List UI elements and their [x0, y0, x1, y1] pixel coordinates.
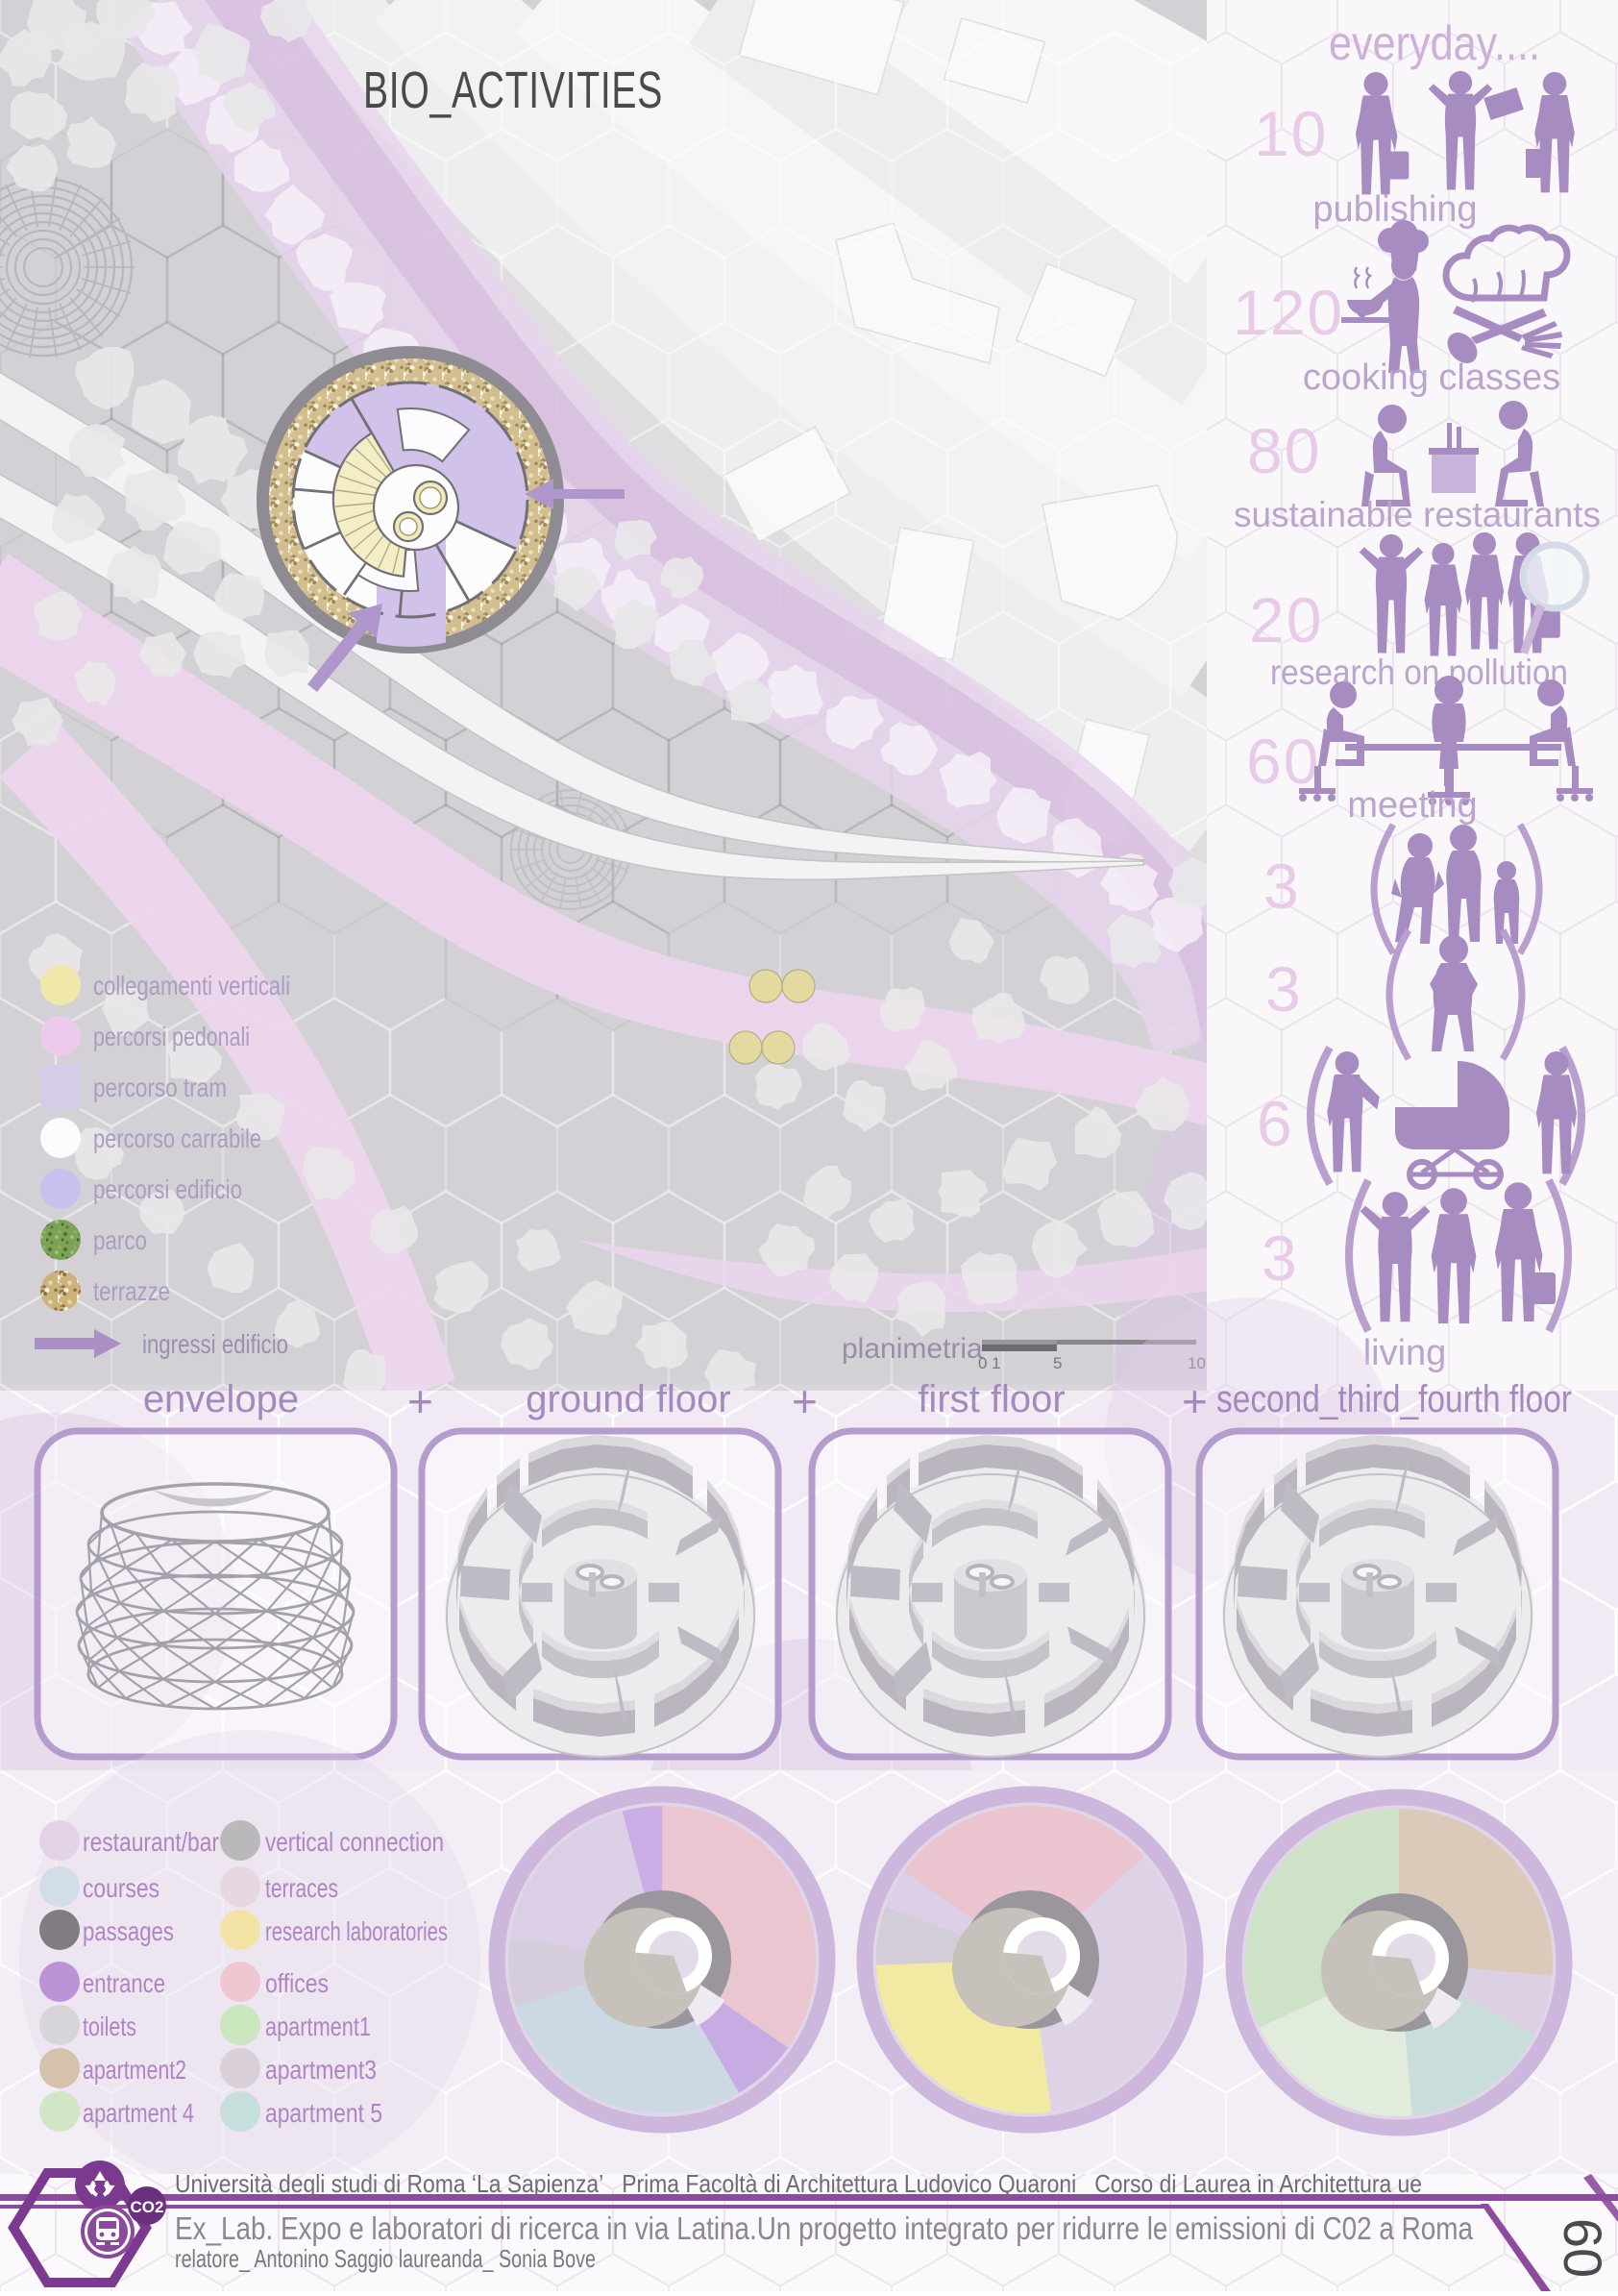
svg-text:living: living [1363, 1333, 1447, 1373]
svg-text:passages: passages [83, 1916, 174, 1946]
svg-text:+: + [407, 1376, 433, 1426]
svg-text:Ex_Lab. Expo e laboratori di r: Ex_Lab. Expo e laboratori di ricerca in … [175, 2210, 1474, 2246]
svg-text:first floor: first floor [918, 1378, 1065, 1420]
svg-text:everyday....: everyday.... [1329, 16, 1540, 70]
svg-text:Università degli studi di Roma: Università degli studi di Roma ‘La Sapie… [175, 2169, 1422, 2198]
svg-text:research laboratories: research laboratories [265, 1916, 448, 1946]
svg-text:BIO_ACTIVITIES: BIO_ACTIVITIES [363, 62, 663, 119]
svg-text:5: 5 [1053, 1354, 1062, 1372]
svg-text:relatore_ Antonino Saggio lau: relatore_ Antonino Saggio laureanda_ Son… [175, 2244, 596, 2273]
svg-text:apartment1: apartment1 [265, 2012, 371, 2041]
svg-text:ingressi edificio: ingressi edificio [142, 1329, 288, 1359]
svg-text:0 1: 0 1 [978, 1354, 1001, 1372]
svg-text:120: 120 [1233, 277, 1344, 348]
svg-text:apartment 4: apartment 4 [83, 2098, 194, 2128]
svg-text:percorso tram: percorso tram [93, 1073, 227, 1102]
svg-text:ground floor: ground floor [526, 1378, 730, 1420]
svg-text:terraces: terraces [265, 1873, 338, 1903]
svg-text:planimetria: planimetria [842, 1333, 983, 1365]
svg-text:toilets: toilets [83, 2012, 136, 2041]
svg-text:parco: parco [93, 1225, 147, 1255]
svg-text:CO2: CO2 [131, 2198, 164, 2216]
svg-text:apartment 5: apartment 5 [265, 2098, 382, 2128]
svg-text:3: 3 [1265, 953, 1301, 1025]
svg-text:20: 20 [1249, 584, 1323, 655]
svg-text:cooking classes: cooking classes [1303, 358, 1560, 398]
svg-text:envelope: envelope [143, 1378, 299, 1420]
svg-text:sustainable restaurants: sustainable restaurants [1234, 495, 1601, 534]
svg-text:offices: offices [265, 1968, 329, 1998]
svg-text:3: 3 [1263, 851, 1299, 922]
svg-text:+: + [792, 1376, 818, 1426]
svg-text:entrance: entrance [83, 1968, 165, 1998]
svg-text:percorso carrabile: percorso carrabile [93, 1123, 261, 1153]
svg-text:restaurant/bar: restaurant/bar [83, 1827, 219, 1857]
svg-text:60: 60 [1246, 726, 1320, 797]
svg-text:60: 60 [1553, 2218, 1613, 2278]
svg-text:+: + [1182, 1376, 1208, 1426]
svg-text:10: 10 [1254, 98, 1328, 169]
svg-text:percorsi pedonali: percorsi pedonali [93, 1022, 250, 1051]
svg-text:meeting: meeting [1347, 785, 1477, 826]
svg-text:6: 6 [1257, 1088, 1292, 1159]
svg-text:apartment3: apartment3 [265, 2055, 377, 2085]
svg-text:collegamenti verticali: collegamenti verticali [93, 971, 290, 1000]
svg-text:courses: courses [83, 1873, 159, 1903]
svg-text:terrazze: terrazze [93, 1276, 170, 1306]
svg-text:research on pollution: research on pollution [1270, 653, 1568, 692]
svg-text:apartment2: apartment2 [83, 2055, 186, 2085]
svg-text:3: 3 [1262, 1222, 1297, 1294]
svg-text:vertical connection: vertical connection [265, 1827, 444, 1857]
svg-text:second_third_fourth floor: second_third_fourth floor [1216, 1378, 1572, 1420]
svg-text:80: 80 [1247, 415, 1321, 486]
svg-text:percorsi edificio: percorsi edificio [93, 1174, 242, 1204]
